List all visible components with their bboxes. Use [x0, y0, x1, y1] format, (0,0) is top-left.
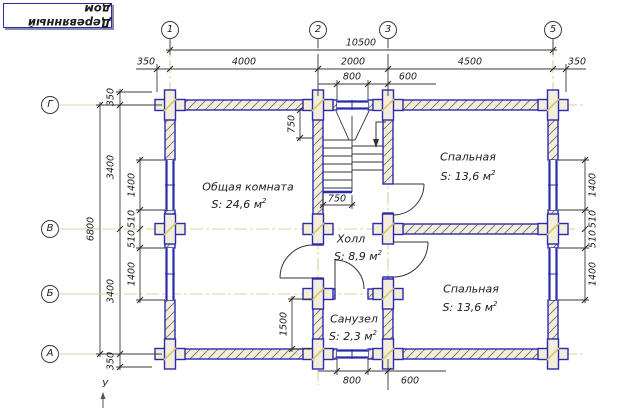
dim-overall-height: 6800 — [86, 217, 96, 241]
dim-left-window-1400-top: 1400 — [127, 173, 137, 197]
axis-label-5: 5 — [550, 25, 556, 35]
dim-stair-750-vertical: 750 — [287, 115, 297, 133]
dim-top-2000: 2000 — [341, 57, 365, 67]
room-area-bedroom-top: S: 13,6 м2 — [441, 170, 496, 182]
dim-left-510-bottom: 510 — [127, 230, 137, 248]
room-label-living: Общая комната — [202, 182, 293, 193]
room-label-bedroom-top: Спальная — [440, 152, 496, 163]
room-label-hall: Холл — [337, 234, 365, 245]
floor-plan-screenshot: Деревянный дом 1 2 3 5 Г В Б А 10500 350… — [0, 0, 626, 408]
dim-bath-1500: 1500 — [279, 312, 289, 336]
door-bedroom-top — [393, 184, 424, 215]
dim-left-350-top: 350 — [106, 88, 116, 106]
dim-stair-750-width: 750 — [328, 194, 346, 204]
dim-bottom-800: 800 — [343, 376, 361, 386]
room-label-bedroom-bottom: Спальная — [443, 284, 499, 295]
room-area-living: S: 24,6 м2 — [212, 198, 267, 210]
door-living — [280, 245, 313, 278]
room-label-bathroom: Санузел — [330, 314, 378, 325]
axis-label-v: В — [47, 224, 54, 234]
dim-left-window-1400-bottom: 1400 — [127, 262, 137, 286]
coordinate-axis-arrow — [101, 392, 106, 408]
axis-label-g: Г — [47, 100, 53, 110]
room-area-hall: S: 8,9 м2 — [334, 250, 382, 262]
room-area-bathroom: S: 2,3 м2 — [329, 330, 377, 342]
dim-top-600: 600 — [399, 72, 417, 82]
dim-top-800: 800 — [343, 72, 361, 82]
title-block: Деревянный дом — [3, 3, 112, 28]
dim-right-window-1400-bottom: 1400 — [588, 262, 598, 286]
axis-label-2: 2 — [315, 25, 321, 35]
dim-top-350-right: 350 — [568, 57, 586, 67]
dim-left-3400-top: 3400 — [106, 155, 116, 179]
axis-label-b: Б — [47, 289, 54, 299]
axis-label-3: 3 — [385, 25, 391, 35]
title-text: Деревянный дом — [4, 2, 111, 30]
door-bathroom — [335, 260, 364, 289]
dim-left-350-bottom: 350 — [106, 352, 116, 370]
room-area-bedroom-bottom: S: 13,6 м2 — [443, 301, 498, 313]
dim-top-4500: 4500 — [458, 57, 482, 67]
dim-left-510-top: 510 — [127, 210, 137, 228]
axis-label-a: А — [47, 349, 54, 359]
dim-right-510-bottom: 510 — [588, 230, 598, 248]
dim-top-4000: 4000 — [232, 57, 256, 67]
coordinate-axis-label: У — [102, 380, 108, 390]
floor-plan-drawing — [0, 0, 626, 408]
door-bedroom-bottom — [393, 242, 428, 277]
dim-right-510-top: 510 — [588, 210, 598, 228]
staircase — [323, 111, 383, 192]
dim-bottom-600: 600 — [401, 376, 419, 386]
dim-overall-width: 10500 — [346, 38, 376, 48]
dim-top-350-left: 350 — [137, 57, 155, 67]
dim-left-3400-bottom: 3400 — [106, 279, 116, 303]
dim-right-window-1400-top: 1400 — [588, 173, 598, 197]
axis-label-1: 1 — [167, 25, 173, 35]
